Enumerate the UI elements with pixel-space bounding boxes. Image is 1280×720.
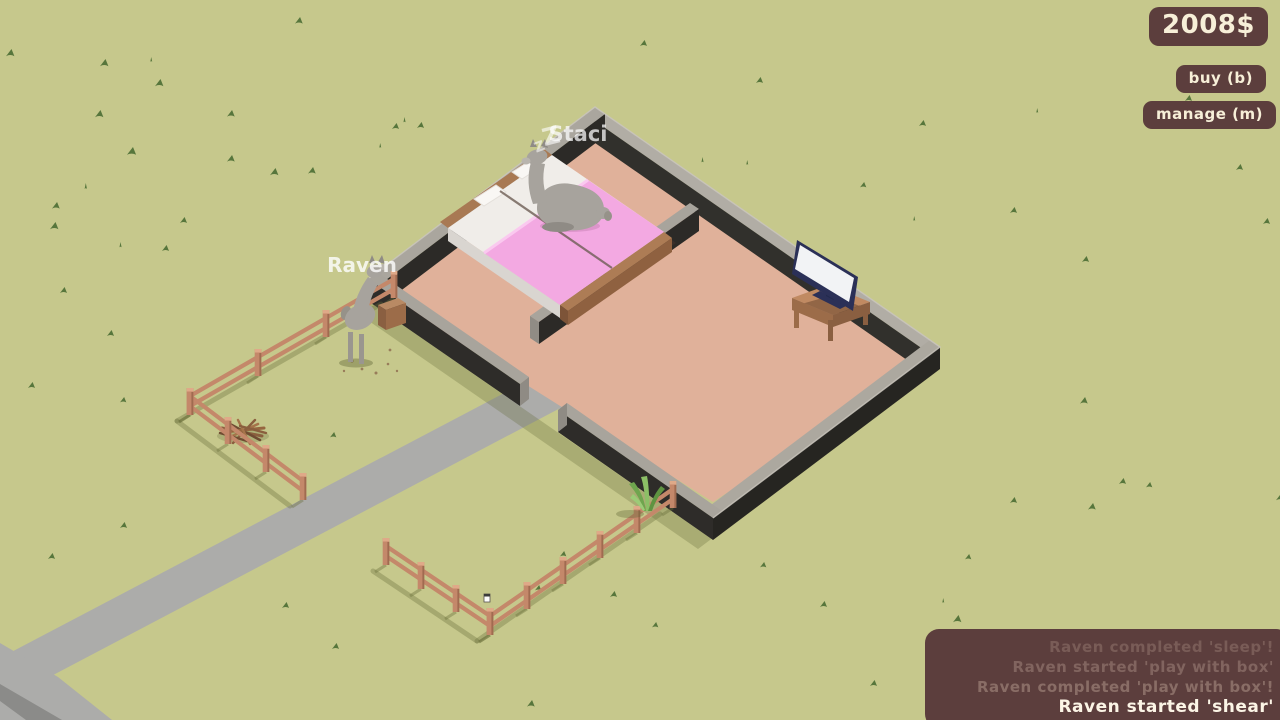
money-value: 2008$ [1162, 10, 1255, 40]
log-entry: Raven completed 'play with box'! [937, 677, 1274, 697]
alpaca-legs-folded [542, 222, 574, 232]
tv-stand-leg [863, 306, 868, 325]
alpaca-leg [348, 332, 353, 362]
cursor-dot[interactable] [484, 594, 490, 602]
raven-name-label: Raven [327, 253, 397, 277]
game-viewport: Staci Z Z Raven 2008$ buy (b) manage (m)… [0, 0, 1280, 720]
alpaca-tail [604, 211, 612, 221]
alpaca-leg [359, 334, 364, 364]
manage-button[interactable]: manage (m) [1143, 101, 1276, 129]
tv-stand-leg [828, 320, 833, 341]
log-entry: Raven completed 'sleep'! [937, 637, 1274, 657]
alpaca-muzzle [522, 158, 531, 165]
activity-log: Raven completed 'sleep'! Raven started '… [925, 629, 1280, 720]
log-entry: Raven started 'play with box' [937, 657, 1274, 677]
plant-shadow [616, 510, 644, 518]
buy-button[interactable]: buy (b) [1176, 65, 1266, 93]
money-display: 2008$ [1149, 7, 1268, 46]
alpaca-shadow [339, 359, 373, 368]
game-scene: Staci Z Z Raven [0, 0, 1280, 720]
log-entry-current: Raven started 'shear' [937, 697, 1274, 717]
tv-stand-leg [794, 308, 799, 328]
